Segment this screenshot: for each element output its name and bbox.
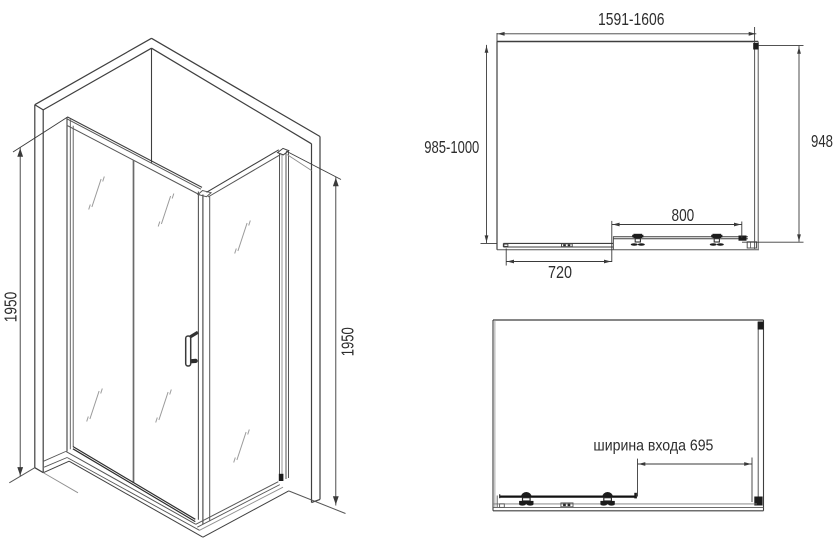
svg-text:985-1000: 985-1000 xyxy=(424,137,479,157)
svg-text:800: 800 xyxy=(672,205,695,225)
svg-text:1950: 1950 xyxy=(338,327,358,356)
svg-text:ширина входа 695: ширина входа 695 xyxy=(593,437,713,454)
svg-text:720: 720 xyxy=(548,262,572,282)
svg-text:948: 948 xyxy=(811,131,833,151)
svg-text:1591-1606: 1591-1606 xyxy=(598,9,665,29)
svg-text:1950: 1950 xyxy=(1,292,21,323)
